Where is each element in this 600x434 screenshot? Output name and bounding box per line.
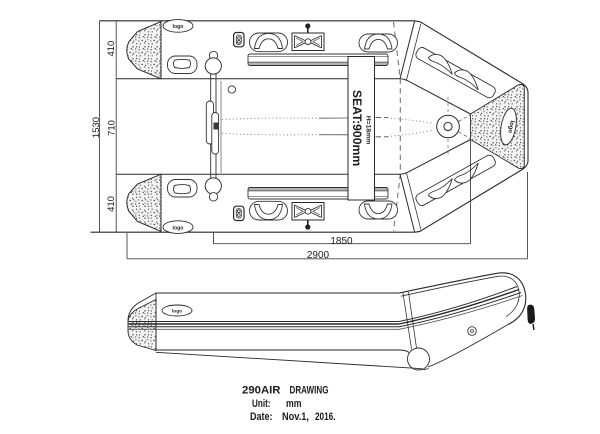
svg-text:1850: 1850: [330, 236, 353, 247]
svg-text:logo: logo: [173, 225, 184, 231]
svg-text:410: 410: [106, 41, 117, 57]
svg-text:Unit:: Unit:: [252, 398, 271, 410]
svg-text:2016.: 2016.: [315, 411, 336, 423]
svg-text:710: 710: [106, 120, 117, 136]
svg-text:mm: mm: [286, 398, 302, 410]
svg-text:290AIR: 290AIR: [242, 385, 281, 397]
svg-text:2900: 2900: [307, 250, 330, 261]
svg-text:1530: 1530: [91, 117, 102, 138]
svg-text:DRAWING: DRAWING: [290, 385, 329, 397]
svg-text:logo: logo: [172, 308, 182, 314]
svg-text:Nov.1,: Nov.1,: [282, 411, 309, 423]
svg-text:410: 410: [106, 196, 117, 212]
svg-text:SEAT:900mm: SEAT:900mm: [350, 90, 364, 166]
svg-text:H=18mm: H=18mm: [365, 116, 372, 145]
svg-text:logo: logo: [173, 24, 184, 30]
svg-text:Date:: Date:: [250, 411, 273, 423]
